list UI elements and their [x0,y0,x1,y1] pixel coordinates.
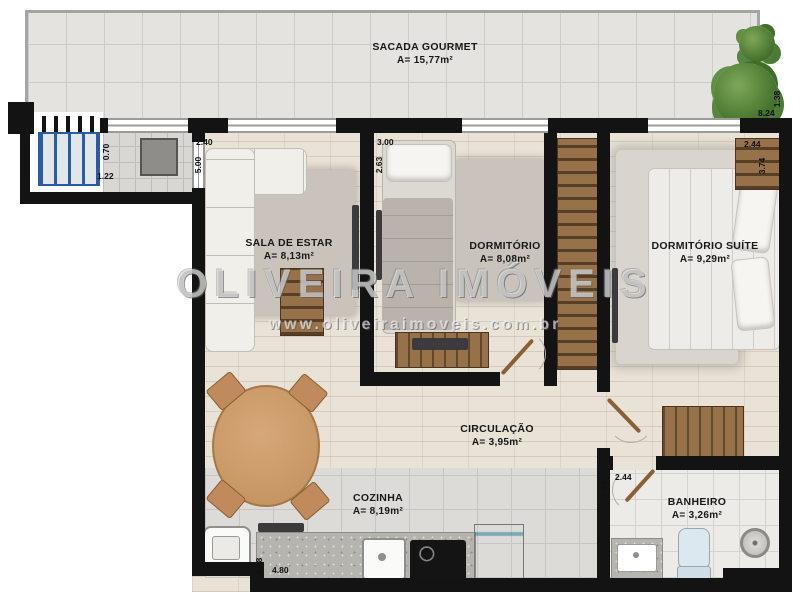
dim-suite-shelf-depth: 3.74 [757,151,767,181]
wall [20,124,30,198]
room-name: COZINHA [308,492,448,505]
toilet-bowl [678,528,710,568]
shaft-box [140,138,178,176]
dim-kitchen-length: 4.80 [272,565,289,575]
floor-plan: SACADA GOURMET A= 15,77m² SALA DE ESTAR … [0,0,800,600]
room-name: DORMITÓRIO SUÍTE [625,240,785,253]
dim-balcony-length: 8.24 [758,108,775,118]
window-bedroom [462,118,548,133]
room-label-banheiro: BANHEIRO A= 3,26m² [627,496,767,522]
wall [779,118,792,592]
wall [20,192,192,204]
fire-escape-ladder [38,132,100,186]
window-living [228,118,336,133]
plant [739,26,775,62]
bed-pillow [386,144,452,182]
dim-bath-side: 1.40 [599,474,609,504]
room-area: A= 3,26m² [627,509,767,522]
window-suite [648,118,740,133]
suite-pillow [730,256,775,332]
wall [723,568,779,580]
wall [360,372,500,386]
room-name: SACADA GOURMET [355,41,495,54]
room-name: SALA DE ESTAR [219,237,359,250]
watermark-brand: OLIVEIRA IMÓVEIS [155,262,675,307]
room-label-sacada: SACADA GOURMET A= 15,77m² [355,41,495,67]
sink-faucet [378,553,386,561]
room-name: DORMITÓRIO [435,240,575,253]
room-label-sala: SALA DE ESTAR A= 8,13m² [219,237,359,263]
suite-dresser [662,406,744,458]
shower-head [740,528,770,558]
window-hall [108,118,188,133]
room-area: A= 15,77m² [355,54,495,67]
wall [597,456,613,470]
dim-dorm-depth: 2.63 [374,150,384,180]
wall [656,456,779,470]
dresser-tv [412,338,468,350]
room-name: BANHEIRO [627,496,767,509]
dim-sala-width: 2.40 [196,137,213,147]
wall [360,133,374,386]
dim-ladder-depth: 1.22 [97,171,114,181]
vanity-faucet [633,552,639,558]
dim-ladder-width: 0.70 [101,137,111,167]
wall [250,578,792,592]
dim-sala-depth: 5.00 [193,150,203,180]
watermark-url: www.oliveiraimoveis.com.br [155,316,675,334]
room-label-circulacao: CIRCULAÇÃO A= 3,95m² [427,423,567,449]
laundry-tub-basin [212,536,240,560]
dim-kitchen-step: 0.28 [254,551,264,581]
ladder-rungs [42,116,98,132]
room-area: A= 3,95m² [427,436,567,449]
room-label-cozinha: COZINHA A= 8,19m² [308,492,448,518]
range-hood [258,523,304,532]
room-area: A= 8,19m² [308,505,448,518]
room-name: CIRCULAÇÃO [427,423,567,436]
dim-dorm-width: 3.00 [377,137,394,147]
bathroom-sink [617,544,657,572]
dim-bath-width: 2.44 [615,472,632,482]
dim-suite-shelf-width: 2.44 [744,139,761,149]
